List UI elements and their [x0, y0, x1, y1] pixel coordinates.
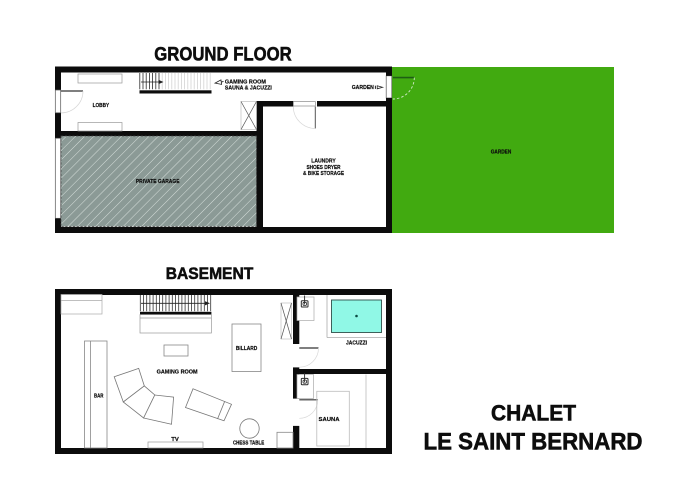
- svg-text:GAMING ROOM: GAMING ROOM: [157, 369, 199, 375]
- svg-text:BILLARD: BILLARD: [236, 346, 258, 352]
- svg-text:PRIVATE GARAGE: PRIVATE GARAGE: [136, 179, 180, 185]
- svg-text:GARDEN: GARDEN: [491, 149, 512, 155]
- svg-text:GARDEN: GARDEN: [352, 85, 374, 91]
- svg-text:SHOES DRYER: SHOES DRYER: [307, 165, 341, 171]
- svg-text:BASEMENT: BASEMENT: [166, 264, 254, 283]
- svg-text:GROUND FLOOR: GROUND FLOOR: [154, 44, 292, 65]
- svg-text:BAR: BAR: [94, 394, 104, 400]
- svg-text:SAUNA: SAUNA: [319, 417, 340, 423]
- svg-text:CHALET: CHALET: [491, 401, 576, 426]
- svg-text:JACUZZI: JACUZZI: [346, 340, 367, 346]
- svg-text:& BIKE STORAGE: & BIKE STORAGE: [303, 171, 344, 177]
- svg-text:CHESS TABLE: CHESS TABLE: [233, 440, 265, 446]
- svg-text:TV: TV: [171, 437, 179, 443]
- svg-text:LOBBY: LOBBY: [93, 103, 110, 109]
- svg-text:GAMING ROOM: GAMING ROOM: [225, 79, 266, 85]
- svg-text:LAUNDRY: LAUNDRY: [311, 159, 336, 165]
- svg-text:SAUNA & JACUZZI: SAUNA & JACUZZI: [225, 85, 272, 91]
- svg-text:LE SAINT BERNARD: LE SAINT BERNARD: [424, 428, 643, 455]
